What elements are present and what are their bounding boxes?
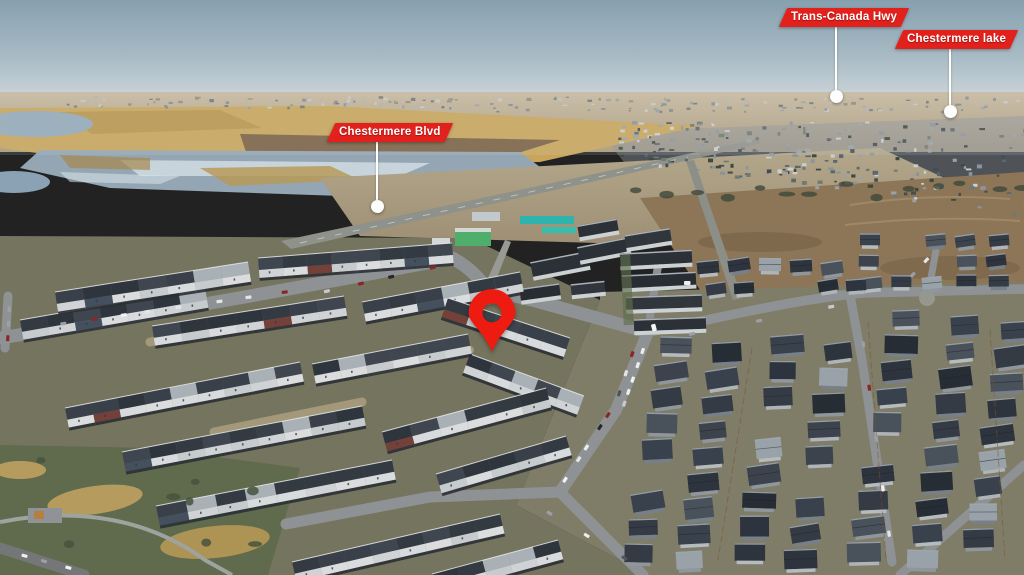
location-pin-icon xyxy=(465,289,519,354)
annotation-layer: Trans-Canada Hwy Chestermere lake Cheste… xyxy=(0,0,1024,575)
label-trans-canada-hwy: Trans-Canada Hwy xyxy=(779,8,910,27)
leader-dot xyxy=(830,90,843,103)
leader-line xyxy=(376,142,378,200)
label-chestermere-blvd: Chestermere Blvd xyxy=(327,123,453,142)
leader-line xyxy=(835,27,837,90)
label-text: Trans-Canada Hwy xyxy=(791,8,897,27)
leader-line xyxy=(949,49,951,105)
leader-dot xyxy=(944,105,957,118)
label-text: Chestermere lake xyxy=(907,30,1006,49)
aerial-photo-stage: Trans-Canada Hwy Chestermere lake Cheste… xyxy=(0,0,1024,575)
label-chestermere-lake: Chestermere lake xyxy=(895,30,1019,49)
leader-dot xyxy=(371,200,384,213)
label-text: Chestermere Blvd xyxy=(339,123,441,142)
